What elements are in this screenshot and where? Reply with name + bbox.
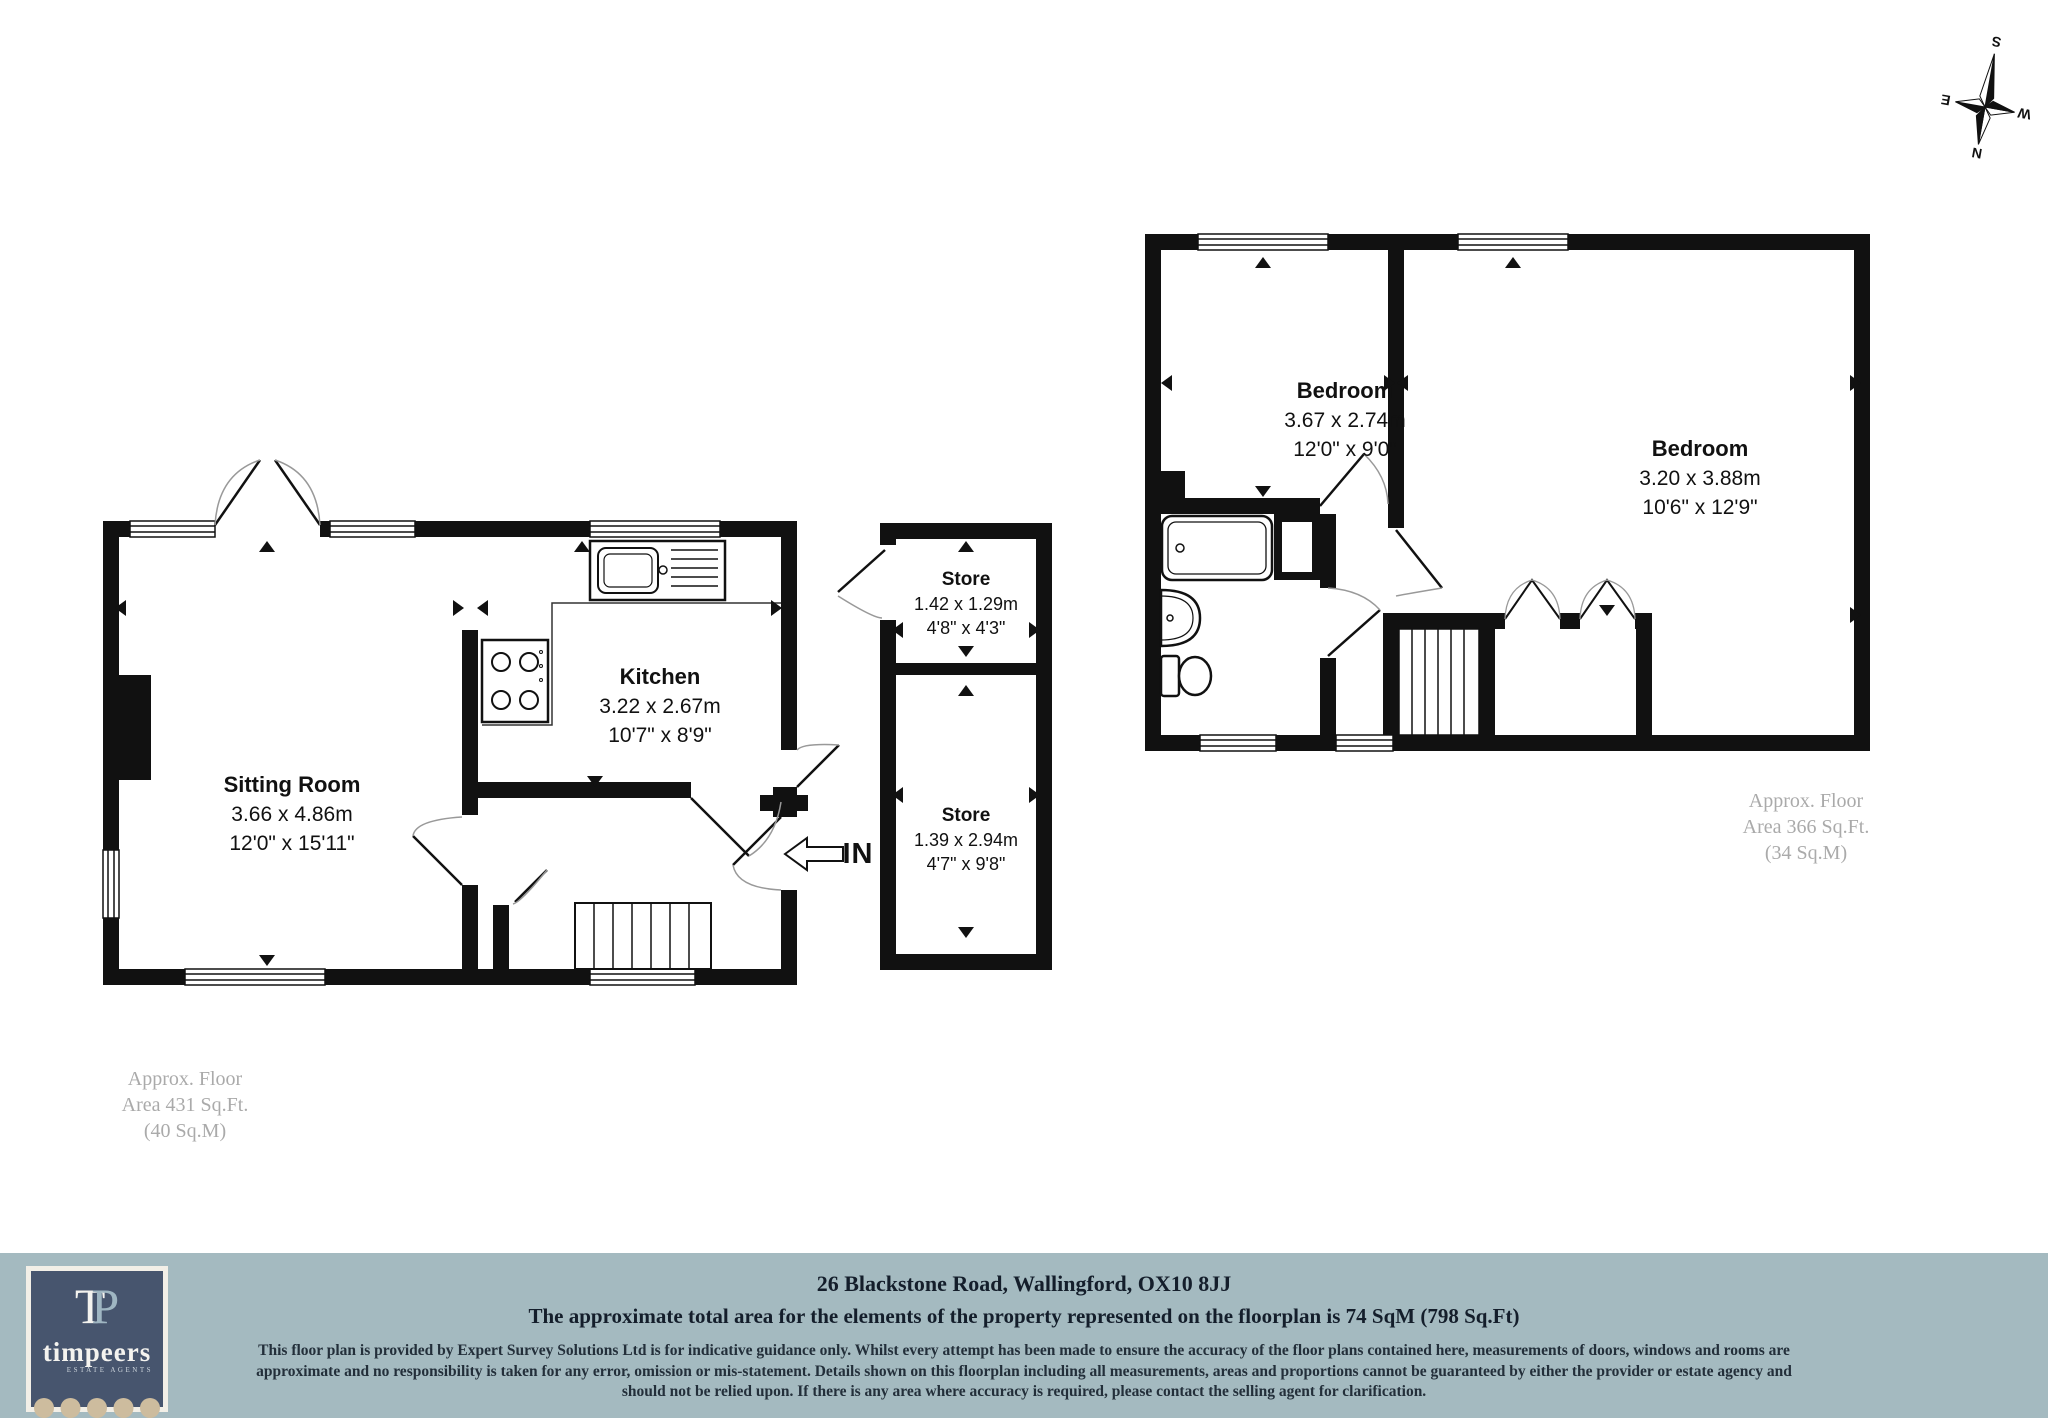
compass-s: S — [1990, 33, 2002, 50]
bedroom-2-label: Bedroom 3.20 x 3.88m 10'6" x 12'9" — [1590, 434, 1810, 522]
room-name: Bedroom — [1235, 376, 1455, 406]
floorplan-page: N S E W — [0, 0, 2048, 1418]
footer-band: TP timpeers ESTATE AGENTS 26 Blackstone … — [0, 1253, 2048, 1418]
sitting-room-label: Sitting Room 3.66 x 4.86m 12'0" x 15'11" — [182, 770, 402, 858]
room-dim-imperial: 4'7" x 9'8" — [896, 852, 1036, 876]
agency-name: timpeers — [43, 1339, 151, 1365]
area-note-line: Area 366 Sq.Ft. — [1706, 814, 1906, 840]
kitchen-label: Kitchen 3.22 x 2.67m 10'7" x 8'9" — [550, 662, 770, 750]
compass-w: W — [2016, 105, 2033, 123]
bathtub — [1162, 516, 1272, 580]
property-address: 26 Blackstone Road, Wallingford, OX10 8J… — [0, 1271, 2048, 1297]
logo-scallop-decoration — [31, 1381, 163, 1407]
store-1-label: Store 1.42 x 1.29m 4'8" x 4'3" — [896, 568, 1036, 640]
room-dim-imperial: 4'8" x 4'3" — [896, 616, 1036, 640]
room-name: Store — [896, 804, 1036, 828]
store-2-label: Store 1.39 x 2.94m 4'7" x 9'8" — [896, 804, 1036, 876]
basin — [1161, 590, 1200, 646]
room-dim-metric: 3.20 x 3.88m — [1590, 464, 1810, 493]
area-note-line: (34 Sq.M) — [1706, 840, 1906, 866]
compass-e: E — [1940, 91, 1952, 108]
room-name: Sitting Room — [182, 770, 402, 800]
area-note-line: (40 Sq.M) — [85, 1118, 285, 1144]
entrance-in-label: IN — [823, 838, 893, 871]
bedroom-1-label: Bedroom 3.67 x 2.74m 12'0" x 9'0" — [1235, 376, 1455, 464]
cupboard-gap-2 — [1580, 613, 1635, 629]
agency-tagline: ESTATE AGENTS — [67, 1366, 163, 1374]
room-dim-imperial: 10'7" x 8'9" — [550, 721, 770, 750]
kitchen-sink — [590, 541, 725, 600]
french-doors — [215, 460, 320, 525]
room-dim-imperial: 10'6" x 12'9" — [1590, 493, 1810, 522]
room-dim-imperial: 12'0" x 15'11" — [182, 829, 402, 858]
area-note-line: Approx. Floor — [1706, 788, 1906, 814]
compass-n: N — [1970, 145, 1983, 163]
room-dim-metric: 3.22 x 2.67m — [550, 692, 770, 721]
kitchen-hob — [482, 640, 548, 722]
total-area-statement: The approximate total area for the eleme… — [0, 1304, 2048, 1329]
room-name: Bedroom — [1590, 434, 1810, 464]
area-note-line: Area 431 Sq.Ft. — [85, 1092, 285, 1118]
room-dim-metric: 3.67 x 2.74m — [1235, 406, 1455, 435]
room-dim-metric: 1.39 x 2.94m — [896, 828, 1036, 852]
store-door-gap — [880, 545, 896, 620]
compass-rose: N S E W — [1915, 35, 2048, 185]
cupboard-gap-1 — [1505, 613, 1560, 629]
area-note-line: Approx. Floor — [85, 1066, 285, 1092]
room-dim-metric: 1.42 x 1.29m — [896, 592, 1036, 616]
room-dim-imperial: 12'0" x 9'0" — [1235, 435, 1455, 464]
room-name: Kitchen — [550, 662, 770, 692]
ground-floor-area-note: Approx. Floor Area 431 Sq.Ft. (40 Sq.M) — [85, 1066, 285, 1144]
room-name: Store — [896, 568, 1036, 592]
first-floor-stairs — [1399, 629, 1479, 735]
ground-floor-stairs — [575, 903, 711, 969]
airing-cupboard — [1274, 514, 1320, 580]
store-door — [838, 550, 885, 618]
room-dim-metric: 3.66 x 4.86m — [182, 800, 402, 829]
disclaimer-text: This floor plan is provided by Expert Su… — [234, 1341, 1814, 1403]
toilet — [1161, 656, 1211, 696]
first-floor-area-note: Approx. Floor Area 366 Sq.Ft. (34 Sq.M) — [1706, 788, 1906, 866]
